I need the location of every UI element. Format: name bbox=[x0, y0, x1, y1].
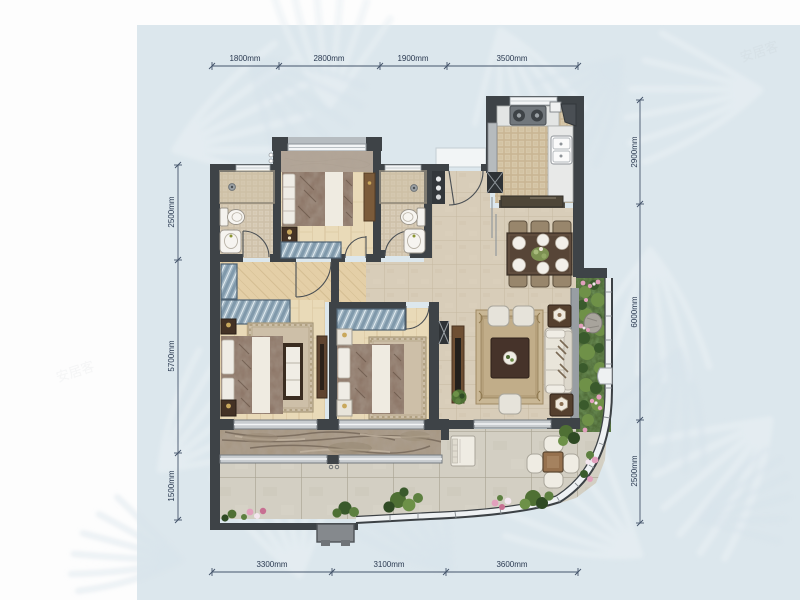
svg-text:2900mm: 2900mm bbox=[630, 136, 639, 167]
svg-text:3500mm: 3500mm bbox=[496, 54, 527, 63]
svg-text:2800mm: 2800mm bbox=[313, 54, 344, 63]
svg-text:6000mm: 6000mm bbox=[630, 296, 639, 327]
svg-text:2500mm: 2500mm bbox=[167, 196, 176, 227]
svg-text:3300mm: 3300mm bbox=[256, 560, 287, 569]
svg-text:1900mm: 1900mm bbox=[397, 54, 428, 63]
svg-text:5700mm: 5700mm bbox=[167, 340, 176, 371]
svg-text:1800mm: 1800mm bbox=[229, 54, 260, 63]
svg-text:3100mm: 3100mm bbox=[373, 560, 404, 569]
svg-text:1500mm: 1500mm bbox=[167, 470, 176, 501]
svg-text:3600mm: 3600mm bbox=[496, 560, 527, 569]
svg-text:2500mm: 2500mm bbox=[630, 455, 639, 486]
